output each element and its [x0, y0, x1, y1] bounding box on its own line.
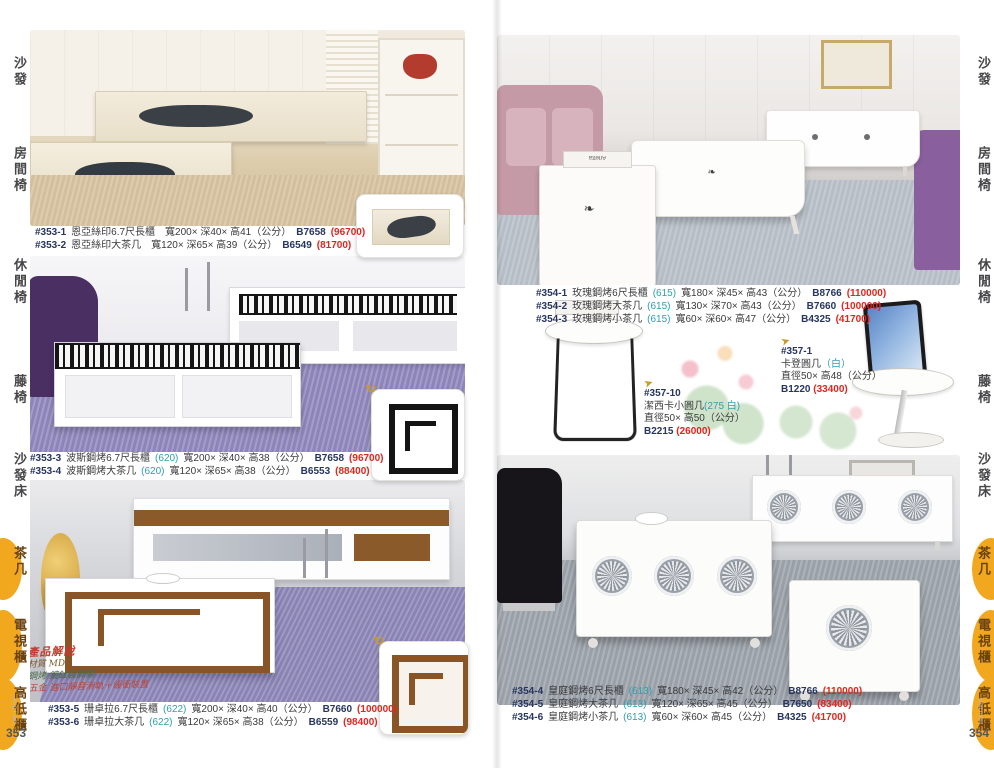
coffee-cup [146, 573, 180, 584]
variant-code: (615) [647, 314, 670, 325]
model-number: #353-5 [48, 704, 79, 715]
dimensions: 寬120× 深65× 高45（公分） [652, 699, 778, 710]
book-spine-label: Arletta [564, 152, 631, 161]
sunburst-medallion [767, 490, 801, 524]
model-number: #354-2 [536, 301, 567, 312]
model-number: #357-1 [781, 346, 882, 359]
caption-line: #353-1恩亞絲印6.7尺長櫃寬200× 深40× 高41（公分）B7658(… [35, 226, 370, 239]
sunburst-medallion [717, 556, 757, 596]
coffee-table-illustration [576, 520, 772, 637]
price-code: B7660 [323, 704, 352, 715]
model-number: #353-2 [35, 240, 66, 251]
price: (110000) [847, 288, 886, 299]
purple-chaise [914, 130, 960, 270]
variant-code: (615) [647, 301, 670, 312]
shelf-line [385, 144, 458, 146]
dimensions: 寬180× 深45× 高42（公分） [657, 686, 783, 697]
end-table-illustration: Arletta ❧ [539, 165, 657, 285]
caption-line: #354-3玫瑰鋼烤小茶几(615)寬60× 深60× 高47（公分）B4325… [536, 313, 891, 326]
price-code: B4325 [801, 314, 830, 325]
sunburst-medallion [654, 556, 694, 596]
knob [812, 134, 818, 140]
product-name: 皇庭鋼烤小茶几 [548, 712, 618, 723]
product-name: 珊卓拉大茶几 [84, 717, 144, 728]
model-number: #354-1 [536, 288, 567, 299]
sidebar-tab-tv-cabinet[interactable]: 電視櫃 [4, 618, 26, 666]
price: (100000) [841, 301, 881, 312]
product-name: 玫瑰鋼烤小茶几 [572, 314, 642, 325]
page-number-left: 353 [6, 726, 26, 740]
dimensions: 寬60× 深60× 高45（公分） [652, 712, 773, 723]
drawer [182, 375, 292, 418]
dimensions: 寬120× 深65× 高38（公分） [178, 717, 304, 728]
walnut-detail-inner [409, 673, 443, 705]
sunburst-medallion [898, 490, 932, 524]
bun-foot [750, 638, 760, 648]
branch-handle: ❧ [584, 201, 595, 217]
sidebar-tab-sofa[interactable]: 沙發 [4, 56, 26, 88]
model-number: #354-4 [512, 686, 543, 697]
caption-line: #354-4皇庭鋼烤6尺長櫃(613)寬180× 深45× 高42（公分）B87… [512, 685, 867, 698]
product-photo-top-right: ❧ Arletta ❧ [497, 35, 960, 285]
floral-handle: ❧ [708, 167, 729, 184]
dimensions: 寬120× 深65× 高38（公分） [170, 466, 296, 477]
caption-line: #354-2玫瑰鋼烤大茶几(615)寬130× 深70× 高43（公分）B766… [536, 300, 891, 313]
caption-line: #353-4波斯鋼烤大茶几(620)寬120× 深65× 高38（公分）B655… [30, 465, 389, 478]
wall-frame [821, 40, 892, 89]
price: (98400) [343, 717, 377, 728]
product-name: 潔西卡小圓几 [644, 401, 704, 412]
variant-code: (622) [149, 717, 172, 728]
price: (26000) [676, 426, 710, 437]
knob [864, 134, 870, 140]
greek-key-band [239, 294, 456, 314]
dimensions: 寬200× 深40× 高41（公分） [165, 227, 291, 238]
round-side-table-illustration [545, 318, 645, 448]
variant-code: (613) [623, 699, 646, 710]
caption-group-354-top: #354-1玫瑰鋼烤6尺長櫃(615)寬180× 深45× 高43（公分）B87… [536, 287, 896, 326]
tea-set [635, 512, 668, 526]
catalog-spread: 沙發 房間椅 休閒椅 藤椅 沙發床 茶几 電視櫃 高低櫃 king room 3… [0, 0, 994, 768]
price: (96700) [331, 227, 365, 238]
end-table-illustration [789, 580, 921, 692]
red-vase [403, 54, 436, 79]
price-code: B7658 [315, 453, 344, 464]
dimensions: 寬200× 深40× 高38（公分） [183, 453, 309, 464]
variant-code: (620) [155, 453, 178, 464]
chrome-stem [894, 390, 908, 434]
price-code: B6559 [309, 717, 338, 728]
sunburst-medallion [826, 605, 872, 651]
sofa-cushion [506, 108, 546, 165]
price: (88400) [335, 466, 369, 477]
dimensions: 寬180× 深45× 高43（公分） [681, 288, 807, 299]
model-number: #357-10 [644, 388, 745, 401]
dimensions: 寬200× 深40× 高40（公分） [191, 704, 317, 715]
caption-group-354-bottom: #354-4皇庭鋼烤6尺長櫃(613)寬180× 深45× 高42（公分）B87… [512, 685, 872, 724]
dimensions: 寬120× 深65× 高39（公分） [151, 240, 277, 251]
model-number: #353-1 [35, 227, 66, 238]
watermark-text: king room [11, 698, 17, 724]
product-photo-bottom-right [497, 455, 960, 705]
black-tufted-chair [497, 468, 562, 603]
sidebar-tab-rattan-chair[interactable]: 藤椅 [968, 374, 990, 406]
price: (81700) [317, 240, 351, 251]
tv-cabinet-illustration [752, 475, 953, 542]
tv-cabinet-illustration [95, 91, 367, 142]
sidebar-tab-tea-table[interactable]: 茶几 [4, 546, 26, 578]
caption-line: #354-1玫瑰鋼烤6尺長櫃(615)寬180× 深45× 高43（公分）B87… [536, 287, 891, 300]
greek-key-band [55, 343, 300, 368]
open-shelf [353, 321, 457, 351]
price: (41700) [812, 712, 846, 723]
price-code: B6553 [301, 466, 330, 477]
greek-key-detail [389, 404, 458, 474]
table-base [878, 432, 944, 448]
caption-line: #353-5珊卓拉6.7尺長櫃(622)寬200× 深40× 高40（公分）B7… [48, 703, 402, 716]
candlestick [185, 268, 188, 311]
variant-code: (613) [623, 712, 646, 723]
caption-line: #353-6珊卓拉大茶几(622)寬120× 深65× 高38（公分）B6559… [48, 716, 402, 729]
side-item-357-10: ➤ #357-10 潔西卡小圓几(275 白) 直徑50× 高50（公分） B2… [644, 378, 745, 438]
greek-key-detail-inner [405, 421, 436, 451]
cabinet-leg [903, 166, 907, 176]
cabinet-inlay [139, 105, 252, 127]
sidebar-tab-sofa-bed[interactable]: 沙發床 [968, 452, 990, 500]
sidebar-tab-lounge-chair[interactable]: 休閒椅 [968, 258, 990, 306]
coffee-table-illustration: ❧ [631, 140, 804, 217]
variant-code: (615) [653, 288, 676, 299]
product-name: 玫瑰鋼烤6尺長櫃 [572, 288, 648, 299]
variant-code: (613) [629, 686, 652, 697]
price: (100000) [357, 704, 397, 715]
sidebar-tab-tv-cabinet[interactable]: 電視櫃 [968, 618, 990, 666]
candlestick [303, 538, 306, 578]
product-name: 皇庭鋼烤6尺長櫃 [548, 686, 624, 697]
price: (83400) [817, 699, 851, 710]
price-code: B6549 [282, 240, 311, 251]
price: (33400) [813, 384, 847, 395]
model-number: #354-6 [512, 712, 543, 723]
candlestick [766, 455, 769, 475]
caption-group-353-top: #353-1恩亞絲印6.7尺長櫃寬200× 深40× 高41（公分）B7658(… [35, 226, 375, 252]
leaf-inlay-detail [385, 213, 436, 240]
product-name: 恩亞絲印大茶几 [71, 240, 141, 251]
model-number: #354-5 [512, 699, 543, 710]
product-name: 皇庭鋼烤大茶几 [548, 699, 618, 710]
sidebar-tab-room-chair[interactable]: 房間椅 [968, 146, 990, 194]
price-code: B7658 [296, 227, 325, 238]
dimensions: 寬130× 深70× 高43（公分） [676, 301, 802, 312]
bun-foot [588, 638, 598, 648]
product-name: 波斯鋼烤6.7尺長櫃 [66, 453, 150, 464]
caption-line: #353-3波斯鋼烤6.7尺長櫃(620)寬200× 深40× 高38（公分）B… [30, 452, 389, 465]
product-name: 恩亞絲印6.7尺長櫃 [71, 227, 155, 238]
dimensions: 直徑50× 高50（公分） [644, 413, 745, 424]
price: (41700) [836, 314, 870, 325]
model-number: #353-3 [30, 453, 61, 464]
side-item-357-1: ➤ #357-1 卡登圓几（白） 直徑50× 高48（公分） B1220 (33… [781, 336, 882, 396]
caption-group-353-mid: #353-3波斯鋼烤6.7尺長櫃(620)寬200× 深40× 高38（公分）B… [30, 452, 394, 478]
drawer [65, 375, 175, 418]
price-code: B8766 [788, 686, 817, 697]
product-name: 珊卓拉6.7尺長櫃 [84, 704, 158, 715]
left-tab-rail: 沙發 房間椅 休閒椅 藤椅 沙發床 茶几 電視櫃 高低櫃 king room 3… [0, 0, 30, 768]
chrome-base [503, 603, 555, 611]
page-number-right: 354 [969, 726, 989, 740]
sidebar-tab-tea-table[interactable]: 茶几 [968, 546, 990, 578]
model-number: #353-4 [30, 466, 61, 477]
product-name: 玫瑰鋼烤大茶几 [572, 301, 642, 312]
sunburst-medallion [592, 556, 632, 596]
shelf-line [385, 94, 458, 96]
price-code: B2215 [644, 426, 673, 437]
tv-cabinet-illustration [133, 498, 450, 580]
price-code: B7660 [807, 301, 836, 312]
price-code: B4325 [777, 712, 806, 723]
coffee-table-illustration [54, 342, 301, 426]
walnut-frame-inner [98, 609, 199, 646]
cabinet-leg [935, 541, 940, 551]
right-tab-rail: 沙發 房間椅 休閒椅 藤椅 沙發床 茶几 電視櫃 高低櫃 king room 3… [964, 0, 994, 768]
price-code: B7650 [783, 699, 812, 710]
metal-frame-legs [553, 338, 637, 441]
dimensions: 直徑50× 高48（公分） [781, 371, 882, 382]
caption-line: #354-5皇庭鋼烤大茶几(613)寬120× 深65× 高45（公分）B765… [512, 698, 867, 711]
price-code: B8766 [812, 288, 841, 299]
dimensions: 寬60× 深60× 高47（公分） [676, 314, 797, 325]
sidebar-tab-rattan-chair[interactable]: 藤椅 [4, 374, 26, 406]
sidebar-tab-room-chair[interactable]: 房間椅 [4, 146, 26, 194]
variant-code: （白） [821, 359, 851, 370]
sidebar-tab-sofa[interactable]: 沙發 [968, 56, 990, 88]
candlestick [789, 455, 792, 475]
price: (96700) [349, 453, 383, 464]
walnut-panel [354, 534, 430, 561]
caption-line: #353-2恩亞絲印大茶几寬120× 深65× 高39（公分）B6549(817… [35, 239, 370, 252]
bun-foot [899, 691, 909, 701]
watermark-text: king room [977, 698, 983, 724]
variant-code: (275 白) [704, 401, 740, 412]
model-number: #353-6 [48, 717, 79, 728]
candlestick [325, 529, 328, 578]
mirror-panel [153, 534, 342, 561]
product-name: 卡登圓几 [781, 359, 821, 370]
variant-code: (620) [141, 466, 164, 477]
variant-code: (622) [163, 704, 186, 715]
price: (110000) [823, 686, 862, 697]
book-stack: Arletta [563, 151, 632, 168]
product-name: 波斯鋼烤大茶几 [66, 466, 136, 477]
caption-group-353-bottom: #353-5珊卓拉6.7尺長櫃(622)寬200× 深40× 高40（公分）B7… [48, 703, 407, 729]
handwritten-product-note: 產品解說 材質 MDF 鋼烤 鍍鈦裝飾條 五金 進口靜音滑軌＋緩衝裝置 [27, 643, 148, 695]
caption-line: #354-6皇庭鋼烤小茶几(613)寬60× 深60× 高45（公分）B4325… [512, 711, 867, 724]
sidebar-tab-sofa-bed[interactable]: 沙發床 [4, 452, 26, 500]
sidebar-tab-lounge-chair[interactable]: 休閒椅 [4, 258, 26, 306]
model-number: #354-3 [536, 314, 567, 325]
walnut-stripe [134, 510, 449, 526]
sunburst-medallion [832, 490, 866, 524]
candlestick [207, 262, 210, 311]
price-code: B1220 [781, 384, 810, 395]
tissue-box-detail [372, 209, 450, 246]
page-gutter [492, 0, 502, 768]
